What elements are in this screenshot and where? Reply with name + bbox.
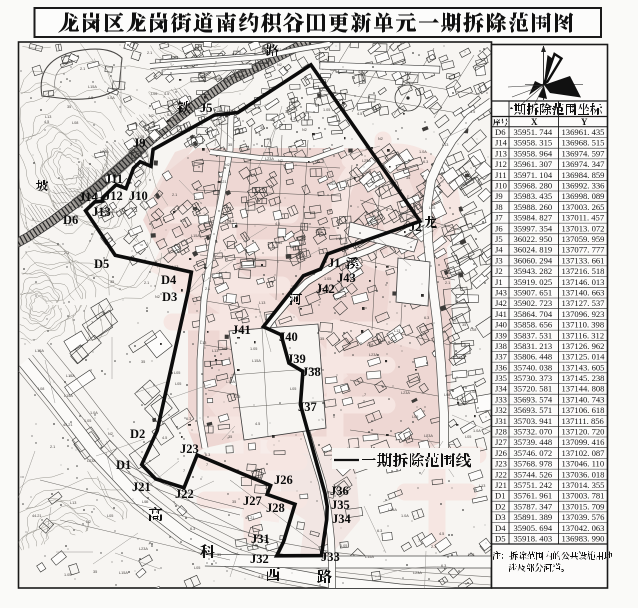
svg-text:35693. 574: 35693. 574: [514, 394, 553, 404]
svg-text:35968. 280: 35968. 280: [514, 181, 553, 191]
svg-text:35891. 389: 35891. 389: [514, 512, 553, 522]
svg-text:2.1: 2.1: [50, 445, 55, 449]
svg-text:J38: J38: [302, 365, 321, 379]
svg-text:136992. 336: 136992. 336: [562, 181, 606, 191]
svg-text:136983. 990: 136983. 990: [562, 534, 605, 544]
svg-text:35831. 213: 35831. 213: [514, 341, 553, 351]
svg-text:L13: L13: [212, 349, 218, 353]
svg-text:J5: J5: [495, 234, 503, 244]
svg-text:J33: J33: [321, 550, 340, 564]
svg-text:2.1: 2.1: [445, 281, 450, 285]
svg-text:44.21: 44.21: [245, 516, 255, 520]
svg-text:D5: D5: [495, 534, 506, 544]
svg-text:N2: N2: [149, 114, 154, 118]
svg-text:L23A: L23A: [265, 157, 274, 161]
svg-text:J43: J43: [337, 271, 356, 285]
svg-text:N2: N2: [155, 295, 160, 299]
svg-text:J21: J21: [495, 480, 507, 490]
svg-text:137015. 709: 137015. 709: [562, 501, 605, 511]
svg-text:137126. 962: 137126. 962: [562, 341, 605, 351]
svg-text:L23A: L23A: [369, 353, 378, 357]
svg-text:N2: N2: [378, 137, 383, 141]
svg-text:D6: D6: [495, 127, 506, 137]
svg-text:D1: D1: [495, 491, 506, 501]
svg-text:J37: J37: [495, 352, 508, 362]
svg-text:L23A: L23A: [139, 547, 148, 551]
svg-text:35732. 070: 35732. 070: [514, 427, 553, 437]
svg-text:6.3: 6.3: [424, 316, 429, 320]
svg-text:J34: J34: [332, 512, 352, 526]
svg-text:J35: J35: [495, 373, 507, 383]
svg-text:35: 35: [320, 337, 324, 341]
svg-text:L05: L05: [107, 514, 113, 518]
svg-text:L15A: L15A: [35, 349, 44, 353]
svg-text:6.3: 6.3: [205, 453, 210, 457]
svg-text:D6: D6: [63, 213, 78, 227]
svg-text:35983. 435: 35983. 435: [514, 191, 553, 201]
svg-text:N2: N2: [222, 347, 227, 351]
svg-text:2.1: 2.1: [144, 281, 149, 285]
svg-text:137125. 014: 137125. 014: [562, 352, 606, 362]
svg-text:36024. 819: 36024. 819: [514, 245, 553, 255]
svg-text:35: 35: [406, 176, 410, 180]
svg-text:J13: J13: [495, 148, 507, 158]
svg-text:L05: L05: [290, 387, 296, 391]
svg-text:J22: J22: [495, 469, 507, 479]
svg-text:L08: L08: [470, 328, 476, 332]
svg-text:137013. 072: 137013. 072: [562, 223, 605, 233]
svg-text:1.05: 1.05: [64, 573, 71, 577]
svg-text:L23A: L23A: [413, 571, 422, 575]
svg-text:35919. 025: 35919. 025: [514, 277, 553, 287]
svg-text:J35: J35: [331, 498, 350, 512]
svg-text:J5: J5: [200, 101, 213, 115]
svg-text:2.1: 2.1: [172, 193, 177, 197]
svg-text:36022. 950: 36022. 950: [514, 234, 553, 244]
svg-text:L13: L13: [180, 219, 186, 223]
svg-text:6.3: 6.3: [377, 529, 382, 533]
svg-text:J42: J42: [495, 298, 507, 308]
svg-text:J7: J7: [495, 213, 503, 223]
svg-text:2.1: 2.1: [458, 271, 463, 275]
svg-text:7: 7: [364, 393, 366, 397]
svg-text:35984. 827: 35984. 827: [514, 213, 553, 223]
svg-text:J1: J1: [495, 277, 503, 287]
svg-text:L15A: L15A: [238, 69, 247, 73]
svg-text:L23A: L23A: [87, 459, 96, 463]
svg-text:137077. 777: 137077. 777: [562, 245, 606, 255]
svg-text:2.1: 2.1: [205, 287, 210, 291]
svg-text:L05: L05: [194, 566, 200, 570]
svg-text:35864. 704: 35864. 704: [514, 309, 553, 319]
svg-text:35997. 354: 35997. 354: [514, 223, 553, 233]
svg-text:L08: L08: [367, 343, 373, 347]
svg-text:2.1: 2.1: [80, 67, 85, 71]
svg-text:35: 35: [228, 435, 232, 439]
svg-text:J13: J13: [92, 205, 111, 219]
svg-text:35907. 651: 35907. 651: [514, 288, 553, 298]
svg-text:J26: J26: [274, 473, 293, 487]
svg-text:L08: L08: [444, 393, 450, 397]
svg-text:J31: J31: [251, 532, 270, 546]
svg-text:J27: J27: [495, 437, 508, 447]
svg-text:1.05: 1.05: [324, 277, 331, 281]
svg-text:L15A: L15A: [66, 374, 75, 378]
svg-text:J42: J42: [316, 282, 335, 296]
svg-text:6.3: 6.3: [167, 113, 172, 117]
svg-text:1.0A: 1.0A: [90, 411, 98, 415]
svg-text:35961. 307: 35961. 307: [514, 159, 553, 169]
svg-text:7: 7: [418, 539, 420, 543]
svg-text:J28: J28: [266, 501, 285, 515]
svg-text:N2: N2: [86, 520, 91, 524]
svg-text:137106. 618: 137106. 618: [562, 405, 605, 415]
svg-text:J2: J2: [495, 266, 503, 276]
svg-text:1.0A: 1.0A: [107, 96, 115, 100]
svg-text:J3: J3: [495, 255, 503, 265]
svg-text:7: 7: [474, 487, 476, 491]
svg-text:36060. 294: 36060. 294: [514, 255, 553, 265]
svg-text:137003. 781: 137003. 781: [562, 491, 605, 501]
svg-text:137102. 087: 137102. 087: [562, 448, 606, 458]
svg-text:35: 35: [278, 241, 282, 245]
svg-text:137140. 663: 137140. 663: [562, 288, 605, 298]
svg-text:136961. 435: 136961. 435: [562, 127, 605, 137]
svg-text:D4: D4: [161, 273, 177, 287]
svg-text:L05: L05: [412, 415, 418, 419]
svg-text:35768. 978: 35768. 978: [514, 459, 553, 469]
svg-text:137120. 720: 137120. 720: [562, 427, 605, 437]
svg-text:J40: J40: [495, 320, 507, 330]
svg-text:35744. 526: 35744. 526: [514, 469, 553, 479]
svg-text:D4: D4: [495, 523, 506, 533]
svg-text:J28: J28: [495, 427, 507, 437]
svg-text:L15A: L15A: [365, 555, 374, 559]
svg-text:35: 35: [462, 323, 466, 327]
svg-text:L15A: L15A: [252, 359, 261, 363]
svg-text:35: 35: [232, 500, 236, 504]
svg-text:L13: L13: [336, 237, 342, 241]
svg-text:L23A: L23A: [362, 159, 371, 163]
svg-text:4.5: 4.5: [258, 575, 263, 579]
svg-text:N2: N2: [278, 159, 283, 163]
svg-text:35905. 694: 35905. 694: [514, 523, 553, 533]
svg-text:35746. 072: 35746. 072: [514, 448, 553, 458]
svg-text:7: 7: [134, 244, 136, 248]
svg-text:J27: J27: [243, 494, 262, 508]
svg-text:J43: J43: [495, 288, 507, 298]
svg-text:J12: J12: [495, 159, 507, 169]
svg-text:J37: J37: [298, 400, 317, 414]
svg-text:J11: J11: [495, 170, 507, 180]
svg-text:1.0A: 1.0A: [401, 514, 409, 518]
svg-text:L08: L08: [38, 387, 44, 391]
svg-text:35: 35: [260, 126, 264, 130]
svg-text:137111. 856: 137111. 856: [562, 416, 605, 426]
svg-text:N2: N2: [302, 128, 307, 132]
svg-text:7: 7: [169, 125, 171, 129]
svg-text:35918. 403: 35918. 403: [514, 534, 553, 544]
svg-text:6.3: 6.3: [441, 564, 446, 568]
svg-text:J4: J4: [495, 245, 503, 255]
svg-text:4.5: 4.5: [255, 422, 260, 426]
svg-text:L08: L08: [470, 390, 476, 394]
svg-text:L13: L13: [70, 501, 76, 505]
svg-text:J1: J1: [328, 256, 341, 270]
svg-text:1.0A: 1.0A: [473, 429, 481, 433]
svg-text:137127. 537: 137127. 537: [562, 298, 606, 308]
svg-text:J9: J9: [495, 191, 503, 201]
svg-text:35806. 448: 35806. 448: [514, 352, 553, 362]
svg-text:L15A: L15A: [88, 85, 97, 89]
svg-text:J21: J21: [132, 480, 151, 494]
svg-text:J36: J36: [495, 362, 508, 372]
svg-text:35: 35: [141, 360, 145, 364]
svg-text:1.05: 1.05: [84, 419, 91, 423]
svg-text:D3: D3: [162, 290, 177, 304]
svg-text:137059. 959: 137059. 959: [562, 234, 605, 244]
svg-text:L15A: L15A: [226, 380, 235, 384]
svg-text:4.5: 4.5: [470, 110, 475, 114]
svg-text:J12: J12: [104, 189, 123, 203]
svg-text:35787. 347: 35787. 347: [514, 501, 553, 511]
svg-text:35739. 448: 35739. 448: [514, 437, 553, 447]
svg-text:35751. 242: 35751. 242: [514, 480, 553, 490]
svg-text:137145. 238: 137145. 238: [562, 373, 605, 383]
svg-text:J40: J40: [279, 330, 298, 344]
svg-text:137133. 661: 137133. 661: [562, 255, 605, 265]
svg-text:2.1: 2.1: [431, 545, 436, 549]
svg-text:137046. 110: 137046. 110: [562, 459, 605, 469]
svg-text:4.5: 4.5: [275, 222, 280, 226]
svg-text:L05: L05: [216, 77, 222, 81]
svg-text:L05: L05: [151, 92, 157, 96]
svg-text:L05: L05: [429, 206, 435, 210]
svg-text:J10: J10: [495, 181, 507, 191]
svg-text:L05: L05: [142, 500, 148, 504]
svg-text:35958. 315: 35958. 315: [514, 138, 553, 148]
svg-text:35720. 581: 35720. 581: [514, 384, 553, 394]
svg-text:J10: J10: [129, 189, 148, 203]
svg-text:L15A: L15A: [191, 234, 200, 238]
svg-text:L23A: L23A: [170, 118, 179, 122]
svg-text:L05: L05: [175, 382, 181, 386]
svg-text:35902. 723: 35902. 723: [514, 298, 553, 308]
svg-text:J41: J41: [495, 309, 507, 319]
svg-text:136974. 347: 136974. 347: [562, 159, 606, 169]
svg-text:1.05: 1.05: [340, 544, 347, 548]
svg-text:J14: J14: [79, 190, 99, 204]
svg-text:7: 7: [70, 143, 72, 147]
svg-text:7: 7: [183, 469, 185, 473]
svg-text:D2: D2: [495, 501, 506, 511]
svg-text:L08: L08: [72, 121, 78, 125]
svg-text:137110. 398: 137110. 398: [562, 320, 605, 330]
svg-text:J33: J33: [495, 394, 507, 404]
svg-text:136998. 089: 136998. 089: [562, 191, 605, 201]
svg-text:L15A: L15A: [119, 571, 128, 575]
svg-text:J34: J34: [495, 384, 508, 394]
svg-text:L08: L08: [468, 553, 474, 557]
svg-text:4.5: 4.5: [44, 120, 49, 124]
svg-text:4.5: 4.5: [270, 118, 275, 122]
svg-text:35740. 038: 35740. 038: [514, 362, 553, 372]
svg-text:4.5: 4.5: [164, 92, 169, 96]
svg-text:D2: D2: [130, 427, 145, 441]
svg-text:35: 35: [93, 570, 97, 574]
svg-text:L23A: L23A: [401, 391, 410, 395]
svg-text:35693. 571: 35693. 571: [514, 405, 553, 415]
svg-text:N2: N2: [225, 163, 230, 167]
svg-text:7: 7: [358, 84, 360, 88]
svg-text:J32: J32: [250, 552, 269, 566]
svg-text:L05: L05: [465, 435, 471, 439]
svg-text:137144. 808: 137144. 808: [562, 384, 605, 394]
svg-text:L15A: L15A: [64, 394, 73, 398]
svg-text:L23A: L23A: [454, 356, 463, 360]
svg-text:L13: L13: [442, 143, 448, 147]
svg-text:35951. 744: 35951. 744: [514, 127, 553, 137]
svg-text:137042. 063: 137042. 063: [562, 523, 605, 533]
svg-text:4.5: 4.5: [88, 96, 93, 100]
svg-text:J41: J41: [232, 323, 251, 337]
svg-text:L15A: L15A: [388, 508, 397, 512]
svg-text:D3: D3: [495, 512, 506, 522]
svg-text:J23: J23: [495, 459, 507, 469]
svg-text:J31: J31: [495, 416, 507, 426]
svg-text:137143. 605: 137143. 605: [562, 362, 605, 372]
svg-text:1.05: 1.05: [326, 182, 333, 186]
svg-text:J23: J23: [180, 442, 199, 456]
svg-text:7: 7: [91, 321, 93, 325]
svg-text:137099. 416: 137099. 416: [562, 437, 606, 447]
svg-text:35730. 373: 35730. 373: [514, 373, 553, 383]
svg-text:35971. 104: 35971. 104: [514, 170, 553, 180]
svg-text:J36: J36: [330, 484, 349, 498]
svg-text:L13: L13: [394, 329, 400, 333]
svg-text:Y: Y: [581, 117, 588, 127]
svg-text:137039. 576: 137039. 576: [562, 512, 606, 522]
svg-text:J14: J14: [495, 138, 508, 148]
svg-text:44.21: 44.21: [32, 514, 42, 518]
svg-text:35943. 282: 35943. 282: [514, 266, 553, 276]
svg-text:N2: N2: [277, 63, 282, 67]
svg-text:137011. 457: 137011. 457: [562, 213, 605, 223]
svg-text:X: X: [531, 117, 538, 127]
svg-text:L23A: L23A: [424, 434, 433, 438]
svg-text:6.3: 6.3: [190, 527, 195, 531]
svg-text:1.05: 1.05: [233, 395, 240, 399]
svg-text:J39: J39: [495, 330, 507, 340]
svg-text:35: 35: [67, 105, 71, 109]
svg-text:44.21: 44.21: [358, 70, 368, 74]
svg-text:D5: D5: [94, 257, 109, 271]
svg-text:4.5: 4.5: [357, 112, 362, 116]
svg-text:4.5: 4.5: [162, 436, 167, 440]
svg-text:137014. 355: 137014. 355: [562, 480, 605, 490]
svg-text:44.21: 44.21: [63, 423, 73, 427]
svg-text:J39: J39: [287, 352, 306, 366]
svg-text:137003. 265: 137003. 265: [562, 202, 605, 212]
svg-text:J6: J6: [495, 223, 503, 233]
svg-text:35837. 531: 35837. 531: [514, 330, 553, 340]
svg-text:35958. 964: 35958. 964: [514, 148, 553, 158]
svg-text:137140. 743: 137140. 743: [562, 394, 605, 404]
svg-text:35: 35: [228, 143, 232, 147]
svg-text:136984. 859: 136984. 859: [562, 170, 605, 180]
svg-text:136968. 515: 136968. 515: [562, 138, 605, 148]
svg-text:2.1: 2.1: [64, 251, 69, 255]
svg-text:4.5: 4.5: [229, 219, 234, 223]
svg-text:137116. 312: 137116. 312: [562, 330, 605, 340]
svg-text:6.3: 6.3: [186, 417, 191, 421]
svg-text:J38: J38: [495, 341, 507, 351]
svg-text:35703. 941: 35703. 941: [514, 416, 553, 426]
svg-text:J26: J26: [495, 448, 508, 458]
svg-text:L05: L05: [174, 371, 180, 375]
svg-text:1.0A: 1.0A: [419, 150, 427, 154]
svg-text:35988. 260: 35988. 260: [514, 202, 553, 212]
svg-text:J8: J8: [495, 202, 503, 212]
svg-text:35: 35: [285, 110, 289, 114]
svg-text:1.05: 1.05: [323, 108, 330, 112]
svg-text:44.21: 44.21: [217, 180, 227, 184]
svg-text:4.5: 4.5: [439, 532, 444, 536]
svg-text:35: 35: [110, 280, 114, 284]
svg-text:6.3: 6.3: [423, 160, 428, 164]
svg-text:7: 7: [228, 357, 230, 361]
svg-text:J2: J2: [409, 220, 422, 234]
svg-text:7: 7: [90, 369, 92, 373]
svg-text:L13: L13: [259, 301, 265, 305]
svg-text:L23A: L23A: [100, 150, 109, 154]
svg-text:137146. 013: 137146. 013: [562, 277, 605, 287]
svg-text:137096. 923: 137096. 923: [562, 309, 605, 319]
svg-text:6.3: 6.3: [290, 117, 295, 121]
svg-text:L13: L13: [200, 341, 206, 345]
svg-text:6.3: 6.3: [255, 131, 260, 135]
svg-text:137036. 018: 137036. 018: [562, 469, 605, 479]
svg-text:2.1: 2.1: [147, 51, 152, 55]
svg-text:137216. 518: 137216. 518: [562, 266, 605, 276]
svg-text:J22: J22: [175, 487, 194, 501]
svg-text:J9: J9: [133, 136, 146, 150]
svg-text:N2: N2: [108, 432, 113, 436]
svg-text:35: 35: [217, 553, 221, 557]
svg-text:D1: D1: [116, 458, 131, 472]
svg-text:1.05: 1.05: [250, 347, 257, 351]
svg-text:35761. 961: 35761. 961: [514, 491, 553, 501]
svg-text:J11: J11: [105, 172, 123, 186]
svg-text:L13: L13: [479, 484, 485, 488]
svg-text:35858. 656: 35858. 656: [514, 320, 553, 330]
svg-text:L13: L13: [45, 115, 51, 119]
svg-text:136974. 597: 136974. 597: [562, 148, 606, 158]
svg-text:J32: J32: [495, 405, 507, 415]
svg-text:7: 7: [206, 463, 208, 467]
svg-text:1.05: 1.05: [315, 230, 322, 234]
